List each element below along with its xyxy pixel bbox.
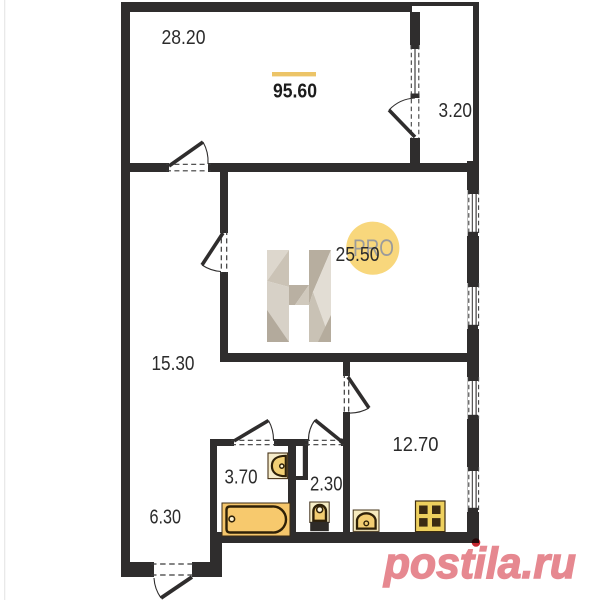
svg-text:28.20: 28.20 (162, 27, 206, 49)
svg-text:postila.ru: postila.ru (383, 539, 576, 588)
svg-text:3.20: 3.20 (439, 100, 473, 122)
svg-text:95.60: 95.60 (273, 81, 317, 103)
svg-text:12.70: 12.70 (393, 434, 439, 456)
svg-text:15.30: 15.30 (152, 353, 195, 375)
svg-text:2.30: 2.30 (310, 474, 343, 496)
svg-text:25.50: 25.50 (336, 244, 380, 266)
svg-text:3.70: 3.70 (225, 467, 258, 489)
svg-text:6.30: 6.30 (150, 507, 182, 529)
